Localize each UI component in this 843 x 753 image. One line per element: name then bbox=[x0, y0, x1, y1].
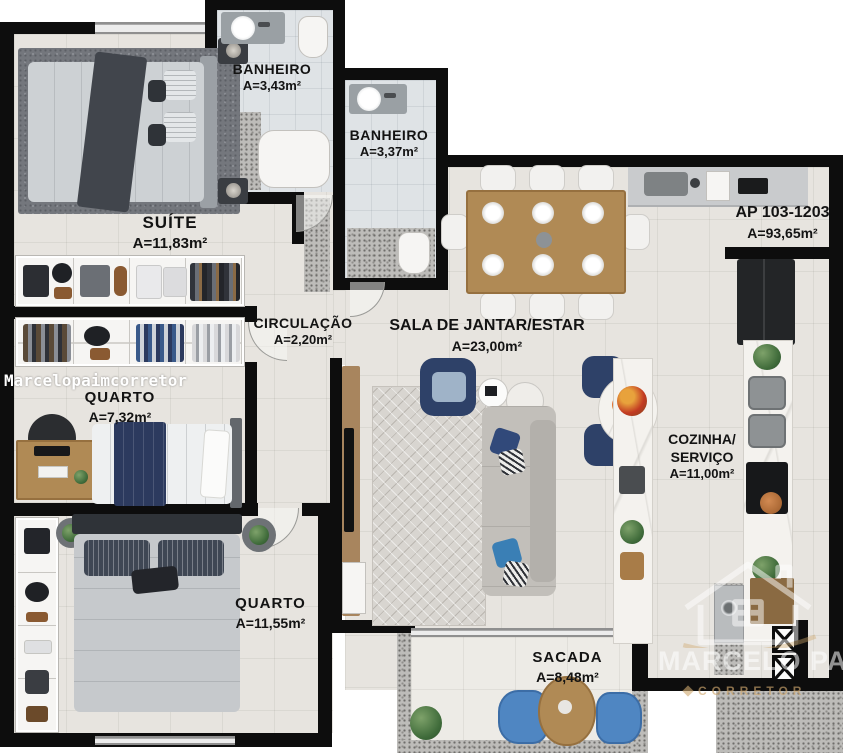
wall-tv bbox=[330, 358, 342, 620]
wall-outer-right bbox=[829, 167, 843, 691]
armchair-cushion bbox=[432, 372, 466, 402]
balcony-chair-right bbox=[596, 692, 642, 744]
coffee-table-book bbox=[485, 386, 497, 396]
room-name: CIRCULAÇÃO bbox=[238, 314, 368, 332]
dining-chair bbox=[441, 214, 469, 250]
shelf-item bbox=[24, 528, 50, 554]
closet-item bbox=[80, 265, 110, 297]
wall-shaft-right-stub bbox=[796, 620, 808, 678]
label-quarto-2: QUARTO A=11,55m² bbox=[208, 594, 333, 632]
kitchen-top-appliance bbox=[706, 171, 730, 201]
closet-hanging-clothes bbox=[23, 324, 71, 362]
sideboard bbox=[342, 562, 366, 614]
dinner-plate bbox=[582, 254, 604, 276]
fruit-bowl bbox=[617, 386, 647, 416]
room-name-line2: SERVIÇO bbox=[650, 448, 754, 466]
dinner-plate bbox=[482, 202, 504, 224]
table-centerpiece bbox=[536, 232, 552, 248]
shelf-item bbox=[24, 640, 52, 654]
closet-item bbox=[84, 326, 110, 346]
sofa-back bbox=[530, 420, 556, 582]
suite-cushion-dark-1 bbox=[148, 80, 166, 102]
dining-chair bbox=[529, 165, 565, 193]
shaft-box-2 bbox=[772, 655, 797, 682]
unit-area: A=93,65m² bbox=[722, 224, 843, 242]
room-name: BANHEIRO bbox=[330, 126, 448, 144]
refrigerator bbox=[737, 259, 795, 345]
bedroom1-blanket bbox=[114, 422, 166, 506]
dinner-plate bbox=[482, 254, 504, 276]
toilet-bath-social bbox=[398, 232, 430, 274]
suite-lamp-1 bbox=[226, 43, 241, 58]
balcony-border-left bbox=[397, 628, 411, 753]
suite-cushion-dark-2 bbox=[148, 124, 166, 146]
label-quarto-1: QUARTO A=7,32m² bbox=[55, 388, 185, 426]
bedroom1-pillow bbox=[200, 429, 231, 499]
closet-item bbox=[163, 267, 187, 297]
sofa-pillow-pattern bbox=[498, 448, 526, 476]
balcony-plant bbox=[410, 706, 442, 740]
dining-chair bbox=[578, 165, 614, 193]
label-cozinha: COZINHA/ SERVIÇO A=11,00m² bbox=[650, 430, 754, 483]
service-ledge bbox=[716, 691, 843, 753]
shaft-box-1 bbox=[772, 626, 797, 653]
sink-bath-suite bbox=[231, 16, 255, 40]
faucet-bath-social bbox=[384, 93, 396, 98]
bedroom1-closet bbox=[16, 318, 244, 366]
closet-item bbox=[90, 348, 110, 360]
suite-pillow-1 bbox=[164, 70, 196, 100]
window-bedroom2 bbox=[95, 736, 235, 745]
room-area: A=11,55m² bbox=[208, 614, 333, 632]
desk-monitor bbox=[34, 446, 70, 456]
frying-pan bbox=[760, 492, 782, 514]
room-name: QUARTO bbox=[55, 388, 185, 408]
faucet-bath-suite bbox=[258, 22, 270, 27]
closet-item bbox=[136, 265, 162, 299]
room-name: QUARTO bbox=[208, 594, 333, 614]
floor-plan: SUÍTE A=11,83m² BANHEIRO A=3,43m² BANHEI… bbox=[0, 0, 843, 753]
dinner-plate bbox=[532, 254, 554, 276]
bedroom2-shelf bbox=[16, 518, 58, 732]
shelf-item bbox=[25, 582, 49, 602]
sofa-pillow-pattern-2 bbox=[502, 560, 530, 588]
room-area: A=23,00m² bbox=[387, 337, 587, 355]
label-circulacao: CIRCULAÇÃO A=2,20m² bbox=[238, 314, 368, 349]
closet-item bbox=[52, 263, 72, 283]
shelf-item bbox=[26, 612, 48, 622]
desk-plant bbox=[74, 470, 88, 484]
label-unit: AP 103-1203 A=93,65m² bbox=[722, 203, 843, 242]
room-name: SACADA bbox=[505, 648, 630, 668]
desk-keyboard bbox=[38, 466, 68, 478]
label-banheiro-social: BANHEIRO A=3,37m² bbox=[330, 126, 448, 161]
suite-closet bbox=[16, 256, 244, 306]
label-sacada: SACADA A=8,48m² bbox=[505, 648, 630, 686]
balcony-table-plate bbox=[558, 700, 572, 714]
dinner-plate bbox=[532, 202, 554, 224]
shelf-item bbox=[26, 706, 48, 722]
sliding-door-balcony bbox=[411, 628, 632, 637]
sink-bath-social bbox=[357, 87, 381, 111]
coffee-machine bbox=[619, 466, 645, 494]
room-area: A=8,48m² bbox=[505, 668, 630, 686]
window-suite bbox=[95, 22, 207, 34]
living-rug bbox=[372, 386, 486, 626]
tv bbox=[344, 428, 354, 532]
room-area: A=11,00m² bbox=[650, 466, 754, 483]
room-area: A=7,32m² bbox=[55, 408, 185, 426]
room-area: A=11,83m² bbox=[95, 234, 245, 254]
suite-lamp-2 bbox=[226, 183, 241, 198]
wall-bath-social-top bbox=[333, 68, 448, 80]
label-banheiro-suite: BANHEIRO A=3,43m² bbox=[212, 60, 332, 95]
closet-hanging-clothes bbox=[192, 324, 240, 362]
wall-kitchen-bottom bbox=[632, 678, 829, 691]
wall-outer-left bbox=[0, 22, 14, 745]
washer-door bbox=[721, 600, 737, 616]
closet-item bbox=[114, 266, 127, 296]
wall-bath-suite-top bbox=[205, 0, 345, 10]
closet-item bbox=[23, 265, 49, 297]
wall-suite-top bbox=[0, 22, 98, 34]
wall-entry bbox=[725, 247, 829, 259]
closet-item bbox=[54, 287, 72, 299]
closet-hanging-clothes bbox=[190, 263, 240, 301]
label-sala: SALA DE JANTAR/ESTAR A=23,00m² bbox=[387, 316, 587, 355]
wall-bath-social-left bbox=[333, 80, 345, 290]
bedroom2-headboard bbox=[72, 514, 242, 534]
bedroom2-cushion bbox=[131, 566, 179, 595]
bedroom2-plant-right bbox=[249, 525, 269, 545]
unit-code: AP 103-1203 bbox=[722, 203, 843, 224]
bathtub-suite bbox=[258, 130, 330, 188]
dining-chair bbox=[622, 214, 650, 250]
room-name: BANHEIRO bbox=[212, 60, 332, 78]
island-basket bbox=[620, 552, 644, 580]
wall-bath-social-right bbox=[436, 68, 448, 290]
counter-plant bbox=[753, 344, 781, 370]
room-area: A=2,20m² bbox=[238, 332, 368, 349]
dinner-plate bbox=[582, 202, 604, 224]
kitchen-black-item bbox=[738, 178, 768, 194]
label-suite: SUÍTE A=11,83m² bbox=[95, 212, 245, 254]
suite-pillow-2 bbox=[164, 112, 196, 142]
island-plant bbox=[620, 520, 644, 544]
kitchen-top-sink bbox=[644, 172, 688, 196]
wall-bedroom1-right-b bbox=[245, 362, 257, 516]
room-name-line1: COZINHA/ bbox=[650, 430, 754, 448]
room-area: A=3,43m² bbox=[212, 78, 332, 95]
room-name: SALA DE JANTAR/ESTAR bbox=[387, 316, 587, 337]
kitchen-sink-1 bbox=[748, 376, 786, 410]
toilet-bath-suite bbox=[298, 16, 328, 58]
closet-hanging-clothes bbox=[136, 324, 184, 362]
dining-chair bbox=[480, 165, 516, 193]
kitchen-faucet bbox=[690, 178, 700, 188]
room-name: SUÍTE bbox=[95, 212, 245, 234]
shelf-item bbox=[25, 670, 49, 694]
service-cabinet bbox=[750, 578, 794, 624]
room-area: A=3,37m² bbox=[330, 144, 448, 161]
